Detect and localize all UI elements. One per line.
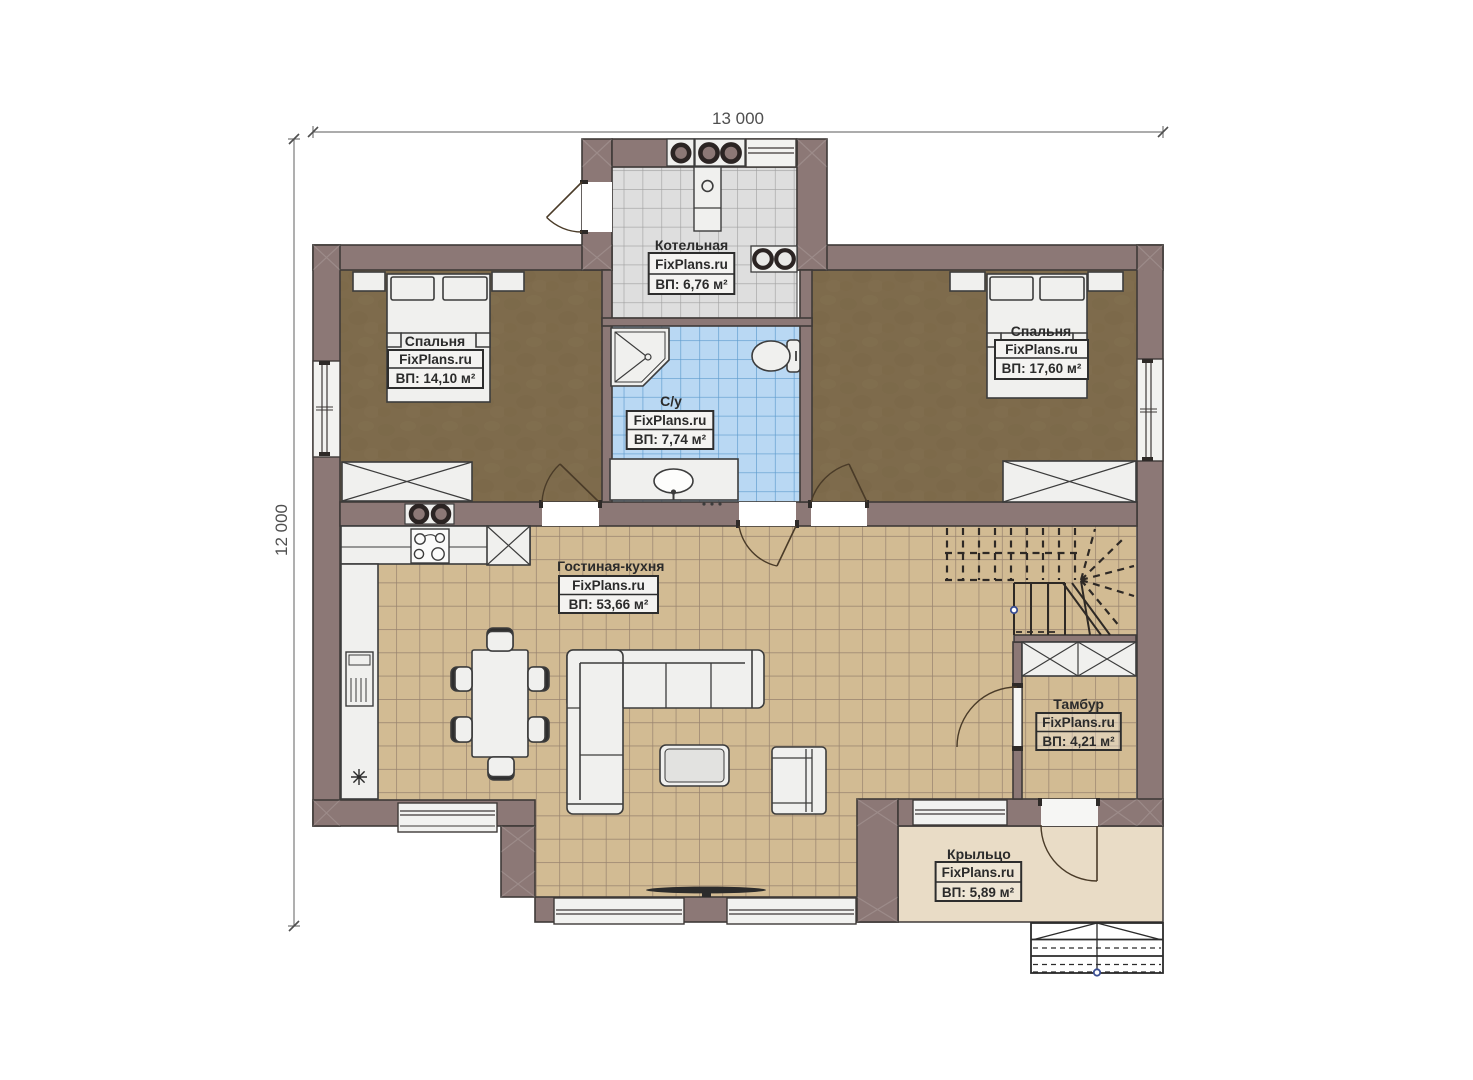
svg-text:Тамбур: Тамбур bbox=[1053, 696, 1104, 712]
svg-text:FixPlans.ru: FixPlans.ru bbox=[1042, 715, 1115, 730]
svg-text:ВП: 4,21 м²: ВП: 4,21 м² bbox=[1042, 734, 1115, 749]
svg-text:Спальня: Спальня bbox=[1011, 323, 1071, 339]
svg-text:ВП: 5,89 м²: ВП: 5,89 м² bbox=[942, 885, 1015, 900]
svg-text:FixPlans.ru: FixPlans.ru bbox=[655, 257, 728, 272]
svg-text:FixPlans.ru: FixPlans.ru bbox=[634, 413, 707, 428]
svg-text:FixPlans.ru: FixPlans.ru bbox=[572, 578, 645, 593]
svg-text:12 000: 12 000 bbox=[272, 504, 291, 556]
svg-text:Гостиная-кухня: Гостиная-кухня bbox=[557, 558, 664, 574]
svg-text:FixPlans.ru: FixPlans.ru bbox=[1005, 342, 1078, 357]
svg-text:ВП: 7,74 м²: ВП: 7,74 м² bbox=[634, 432, 707, 447]
svg-text:13 000: 13 000 bbox=[712, 109, 764, 128]
svg-text:Крыльцо: Крыльцо bbox=[947, 846, 1011, 862]
svg-text:ВП: 53,66 м²: ВП: 53,66 м² bbox=[569, 597, 649, 612]
svg-text:Спальня: Спальня bbox=[405, 333, 465, 349]
svg-text:С/у: С/у bbox=[660, 393, 682, 409]
svg-text:ВП: 17,60 м²: ВП: 17,60 м² bbox=[1002, 361, 1082, 376]
svg-text:FixPlans.ru: FixPlans.ru bbox=[942, 865, 1015, 880]
svg-text:ВП: 6,76 м²: ВП: 6,76 м² bbox=[655, 277, 728, 292]
svg-text:ВП: 14,10 м²: ВП: 14,10 м² bbox=[396, 371, 476, 386]
svg-text:FixPlans.ru: FixPlans.ru bbox=[399, 352, 472, 367]
svg-text:Котельная: Котельная bbox=[655, 237, 728, 253]
